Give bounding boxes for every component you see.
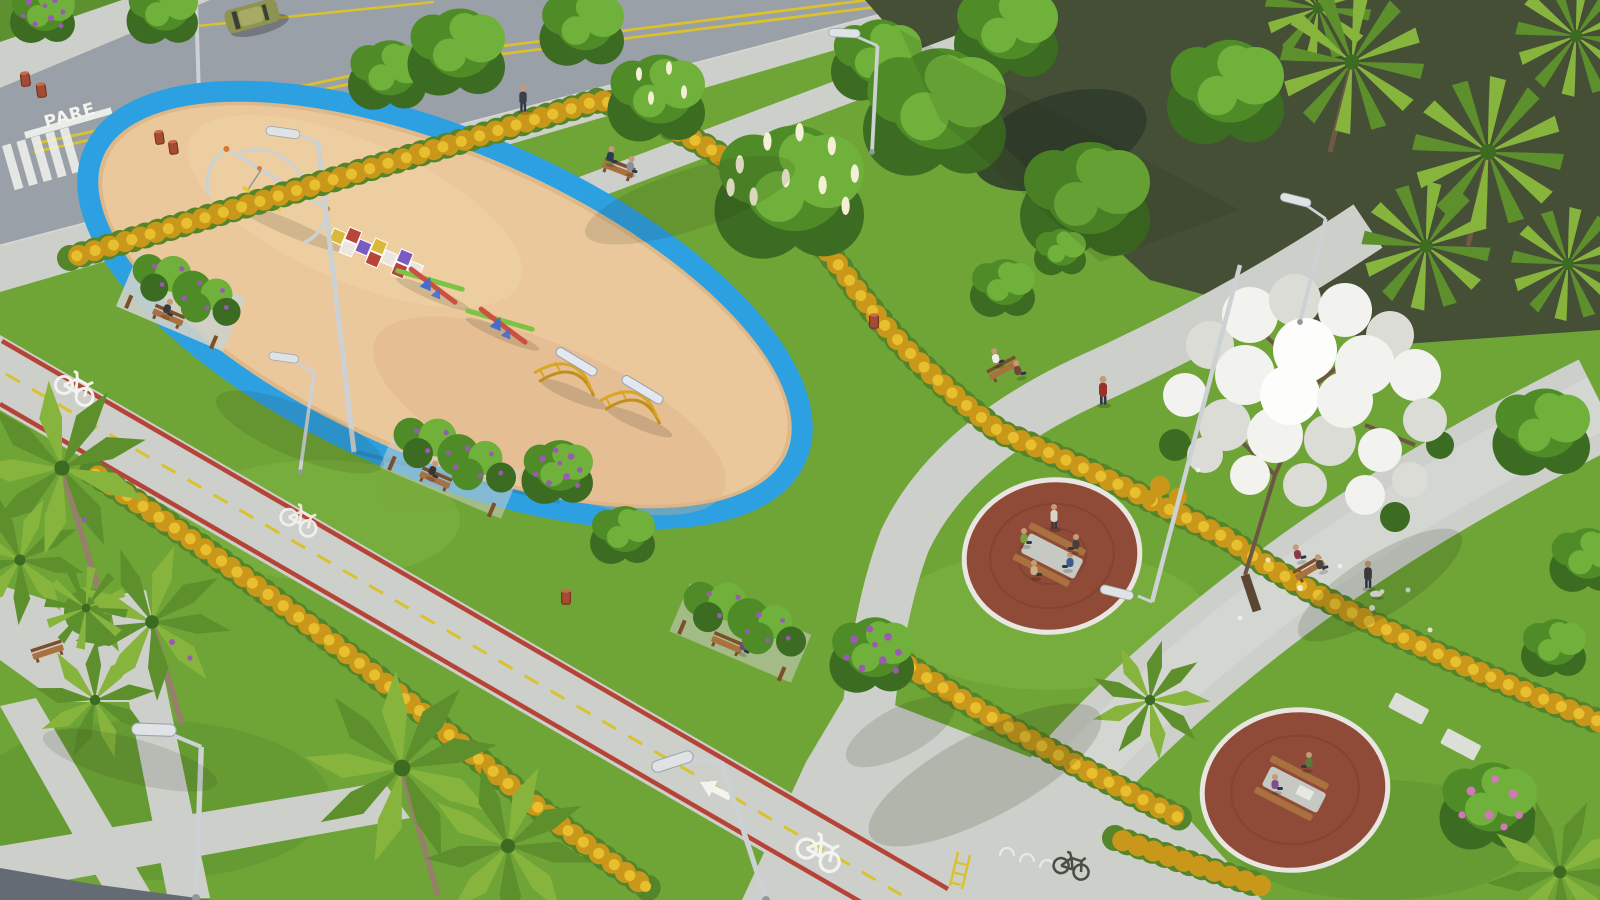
park-aerial-render: PARE <box>0 0 1600 900</box>
bush-6 <box>590 506 655 564</box>
scene-canvas: PARE <box>0 0 1600 900</box>
bin-1 <box>20 71 31 87</box>
bush-5 <box>1521 619 1586 677</box>
bush-1 <box>970 259 1035 317</box>
park-tree-3 <box>540 0 625 66</box>
purple-tree-plaza <box>830 617 915 692</box>
bin-2 <box>36 82 47 98</box>
bush-3 <box>1493 389 1591 476</box>
forest-tree-5 <box>1167 40 1284 144</box>
park-tree-2 <box>408 9 506 96</box>
pink-bush <box>1440 763 1538 850</box>
purple-tree-corner <box>10 0 75 43</box>
bin-5 <box>870 313 879 328</box>
bin-4 <box>168 139 178 154</box>
bush-4 <box>1550 528 1600 592</box>
chestnut-small <box>608 55 706 142</box>
bin-3 <box>154 129 164 144</box>
purple-tree-mid <box>522 440 594 504</box>
street-tree <box>127 0 199 44</box>
bin-6 <box>562 589 571 604</box>
